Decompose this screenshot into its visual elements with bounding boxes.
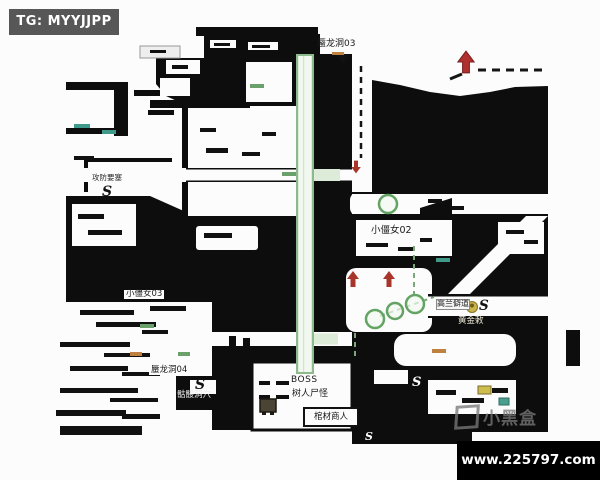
label-shurenshiguai: 树人尸怪 (292, 390, 328, 400)
green-circle-marker (406, 295, 424, 313)
yellow-item-icon (478, 386, 491, 394)
label-shenlongdong04: 蜃龙洞04 (149, 366, 189, 375)
watermark: 小黑盒 (455, 404, 537, 429)
label-shenlongdong03: 蜃龙洞03 (317, 40, 355, 50)
red-up-arrow-icon (458, 51, 474, 73)
label-xiaojiangnv02: 小僵女02 (371, 226, 412, 236)
label-gongfangyaosai: 攻防要塞 (92, 174, 122, 182)
green-circle-marker (387, 303, 403, 319)
green-circle-marker (366, 310, 384, 328)
map-screenshot: 蜃龙洞03 小僵女02 攻防要塞 小僵女03 蜃龙洞04 骷髅洞穴 BOSS 树… (0, 0, 600, 480)
s-marker: S (102, 184, 112, 200)
green-circle-marker (379, 195, 397, 213)
green-corridor (296, 54, 314, 374)
label-boss: BOSS (291, 376, 318, 386)
yellow-head-dot (470, 304, 474, 308)
label-kuloudongxue: 骷髅洞穴 (177, 391, 211, 400)
xiaoheihe-logo-icon (454, 404, 480, 430)
site-badge: www.225797.com (457, 441, 600, 480)
s-marker: S (412, 375, 421, 390)
red-down-arrow-icon (351, 161, 361, 174)
watermark-text: 小黑盒 (483, 404, 537, 429)
label-gaolanpidao: 高兰僻道 (436, 299, 470, 310)
s-marker: S (365, 430, 373, 443)
label-xiaojiangnv03: 小僵女03 (124, 290, 164, 299)
tg-badge: TG: MYYJJPP (9, 9, 119, 35)
label-huangjinchi: 黄金敕 (458, 317, 484, 326)
boss-statue-icon (260, 399, 276, 415)
s-marker: S (195, 377, 205, 393)
s-marker: S (479, 298, 489, 314)
label-guancaishangren: 棺材商人 (303, 407, 359, 427)
